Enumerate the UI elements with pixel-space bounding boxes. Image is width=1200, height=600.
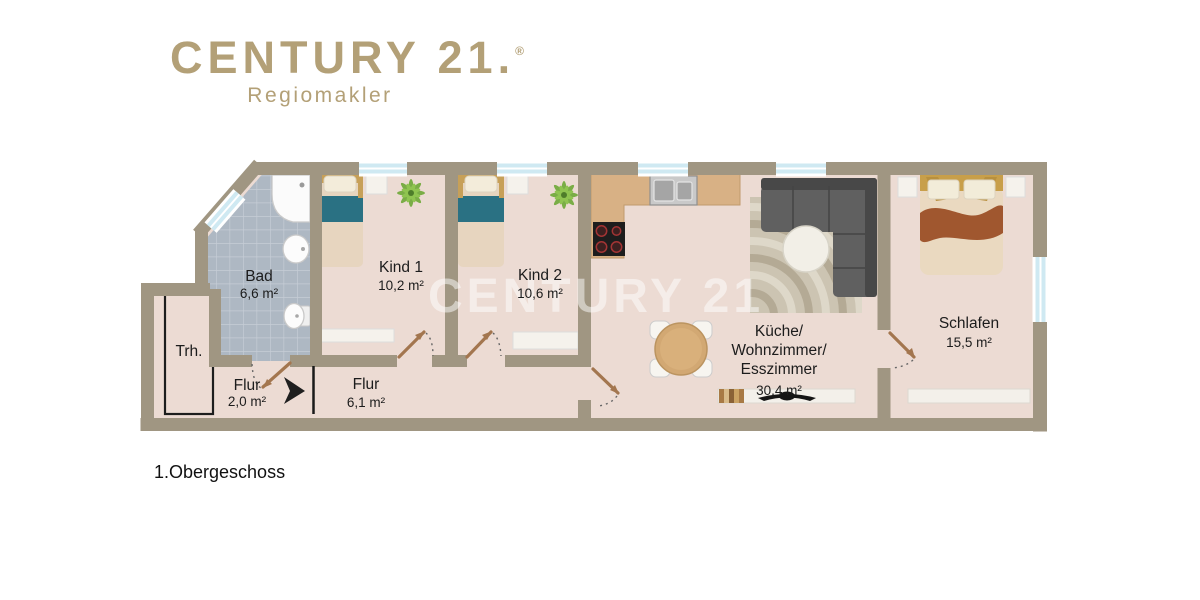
label-kind2-area: 10,6 m²	[517, 286, 563, 301]
kind1-nightstand	[366, 174, 387, 194]
plant-icon-kind2	[550, 181, 578, 209]
plant-icon-kind1	[397, 179, 425, 207]
window-kind1	[359, 161, 407, 177]
label-schlafen-name: Schlafen	[939, 315, 999, 332]
kitchen-sink-icon	[650, 176, 697, 205]
window-kind2	[497, 161, 547, 177]
kind2-nightstand	[507, 174, 528, 194]
logo-brand-text: CENTURY 21	[170, 32, 498, 83]
label-kind2-name: Kind 2	[518, 267, 562, 284]
nightstand-right	[1006, 177, 1025, 197]
label-bad-area: 6,6 m²	[240, 286, 279, 301]
century21-logo: CENTURY 21.® Regiomakler	[170, 34, 470, 108]
label-kueche-area: 30,4 m²	[756, 383, 802, 398]
label-schlafen-area: 15,5 m²	[946, 335, 992, 350]
label-kueche-line2: Wohnzimmer/	[731, 342, 827, 359]
label-kueche-line1: Küche/	[755, 323, 804, 340]
label-flur2-area: 2,0 m²	[228, 394, 267, 409]
logo-period: .	[498, 32, 516, 83]
label-flur6-name: Flur	[353, 376, 380, 393]
kind1-sideboard	[318, 329, 394, 342]
window-kitchen	[638, 161, 688, 177]
kind2-bed-icon	[458, 172, 504, 267]
logo-subtitle: Regiomakler	[170, 84, 470, 108]
floor-level-label: 1.Obergeschoss	[154, 462, 285, 483]
window-bedroom	[1033, 257, 1049, 322]
registered-mark: ®	[515, 44, 524, 58]
kind2-sideboard	[513, 332, 578, 349]
floorplan-page: CENTURY 21.® Regiomakler 1.Obergeschoss	[0, 0, 1200, 600]
label-kind1-name: Kind 1	[379, 259, 423, 276]
dining-set-icon	[650, 321, 712, 377]
nightstand-left	[898, 177, 917, 197]
window-living	[776, 161, 826, 177]
bedroom-dresser	[908, 389, 1030, 403]
label-flur6-area: 6,1 m²	[347, 395, 386, 410]
label-kind1-area: 10,2 m²	[378, 278, 424, 293]
label-kueche-line3: Esszimmer	[741, 361, 818, 378]
toilet-icon	[284, 304, 310, 329]
coffee-table-icon	[783, 226, 829, 272]
label-trh: Trh.	[176, 343, 203, 360]
watermark-text: CENTURY 21	[428, 270, 764, 323]
bath-sink-icon	[283, 235, 309, 263]
label-flur2-name: Flur	[234, 377, 261, 394]
label-bad-name: Bad	[245, 268, 273, 285]
logo-brand: CENTURY 21.®	[170, 34, 470, 81]
double-bed-icon	[920, 175, 1003, 275]
stove-icon	[593, 222, 625, 256]
kind1-bed-icon	[317, 172, 363, 267]
